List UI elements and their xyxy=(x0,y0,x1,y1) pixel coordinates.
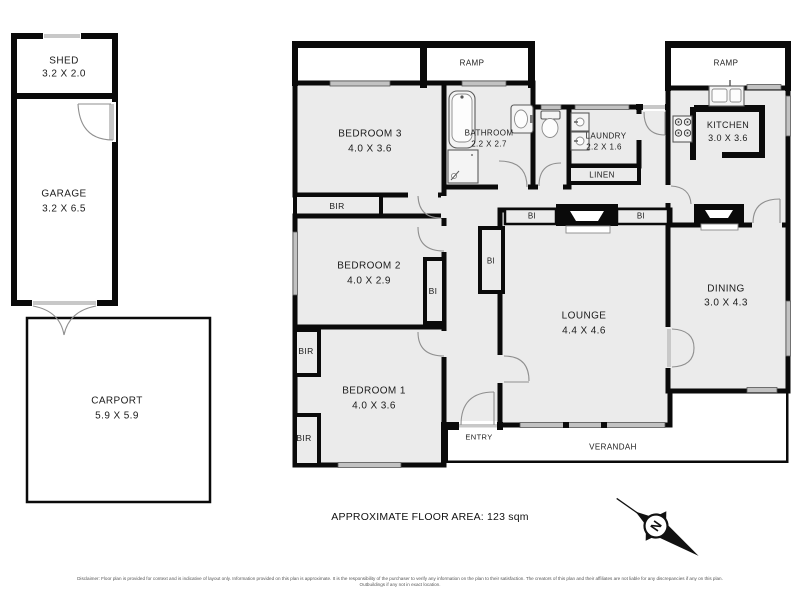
room-label-lounge-name: LOUNGE xyxy=(562,311,607,322)
ramp-label-right: RAMP xyxy=(714,59,739,68)
stove-icon xyxy=(673,116,692,142)
room-label-bedroom1-dims: 4.0 X 3.6 xyxy=(352,401,396,412)
shower-icon xyxy=(448,150,478,183)
room-label-shed-name: SHED xyxy=(49,56,78,67)
washer-icon xyxy=(571,113,589,131)
vanity-basin-icon xyxy=(511,105,533,133)
linen-label: LINEN xyxy=(589,171,615,180)
bi-label-hall: BI xyxy=(487,257,495,266)
room-label-bedroom2-name: BEDROOM 2 xyxy=(337,261,401,272)
floor-plan: N SHED 3.2 X 2.0 GARAGE 3.2 X 6.5 CARPOR… xyxy=(0,0,800,600)
verandah-label: VERANDAH xyxy=(589,443,637,452)
room-label-shed-dims: 3.2 X 2.0 xyxy=(42,69,86,80)
room-label-bathroom-name: BATHROOM xyxy=(465,129,514,138)
north-arrow-icon: N xyxy=(606,484,709,571)
bir-label-bedroom1-b: BIR xyxy=(296,433,311,443)
room-label-bedroom2-dims: 4.0 X 2.9 xyxy=(347,276,391,287)
room-label-dining-name: DINING xyxy=(707,284,744,295)
room-label-kitchen-name: KITCHEN xyxy=(707,120,749,130)
entry-label: ENTRY xyxy=(465,433,492,442)
kitchen-sink-icon xyxy=(709,80,744,106)
room-label-garage-name: GARAGE xyxy=(41,189,86,200)
room-label-laundry-name: LAUNDRY xyxy=(586,132,627,141)
disclaimer-text: Disclaimer: Floor plan is provided for c… xyxy=(70,576,730,588)
room-label-bedroom3-dims: 4.0 X 3.6 xyxy=(348,144,392,155)
room-label-laundry-dims: 2.2 X 1.6 xyxy=(586,143,622,152)
bedroom2-outline xyxy=(295,216,444,327)
garage-outline xyxy=(14,96,115,303)
room-label-lounge-dims: 4.4 X 4.6 xyxy=(562,326,606,337)
room-label-dining-dims: 3.0 X 4.3 xyxy=(704,298,748,309)
bir-label-bedroom3: BIR xyxy=(329,201,344,211)
bi-label-lounge-left: BI xyxy=(528,212,536,221)
room-label-kitchen-dims: 3.0 X 3.6 xyxy=(708,133,748,143)
room-label-bedroom1-name: BEDROOM 1 xyxy=(342,386,406,397)
room-label-bedroom3-name: BEDROOM 3 xyxy=(338,129,402,140)
bi-label-lounge-right: BI xyxy=(637,212,645,221)
room-label-carport-name: CARPORT xyxy=(91,396,143,407)
room-label-carport-dims: 5.9 X 5.9 xyxy=(95,411,139,422)
floor-area-text: APPROXIMATE FLOOR AREA: 123 sqm xyxy=(331,511,528,523)
fireplace-icon-dining xyxy=(694,204,744,230)
floor-plan-drawing: N xyxy=(0,0,800,600)
ramp-label-left: RAMP xyxy=(460,59,485,68)
room-label-bathroom-dims: 2.2 X 2.7 xyxy=(471,140,507,149)
room-label-garage-dims: 3.2 X 6.5 xyxy=(42,204,86,215)
bir-label-bedroom1-a: BIR xyxy=(298,346,313,356)
bi-label-bedroom2: BI xyxy=(429,286,438,296)
